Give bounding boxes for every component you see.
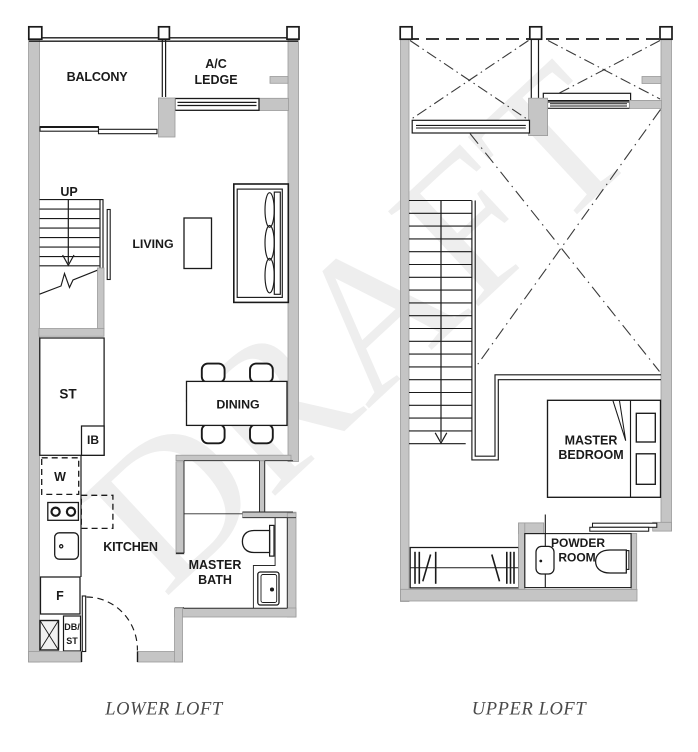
svg-text:BATH: BATH bbox=[198, 573, 232, 587]
svg-text:UP: UP bbox=[60, 185, 77, 199]
svg-text:DINING: DINING bbox=[216, 397, 259, 411]
svg-text:ST: ST bbox=[66, 636, 78, 646]
svg-text:LIVING: LIVING bbox=[132, 237, 173, 251]
svg-text:UPPER LOFT: UPPER LOFT bbox=[472, 700, 588, 720]
svg-text:LOWER LOFT: LOWER LOFT bbox=[104, 700, 224, 720]
svg-text:LEDGE: LEDGE bbox=[194, 73, 237, 87]
svg-text:DB/: DB/ bbox=[64, 622, 80, 632]
svg-text:MASTER: MASTER bbox=[189, 558, 242, 572]
svg-text:POWDER: POWDER bbox=[551, 536, 605, 550]
svg-text:F: F bbox=[56, 589, 64, 603]
svg-text:IB: IB bbox=[87, 433, 99, 447]
svg-text:ROOM: ROOM bbox=[558, 551, 595, 565]
svg-text:W: W bbox=[54, 470, 66, 484]
svg-text:BALCONY: BALCONY bbox=[67, 70, 129, 84]
svg-text:ST: ST bbox=[59, 387, 77, 402]
svg-text:A/C: A/C bbox=[205, 57, 227, 71]
svg-text:KITCHEN: KITCHEN bbox=[103, 540, 158, 554]
svg-text:MASTER: MASTER bbox=[565, 434, 618, 448]
svg-text:BEDROOM: BEDROOM bbox=[558, 448, 623, 462]
